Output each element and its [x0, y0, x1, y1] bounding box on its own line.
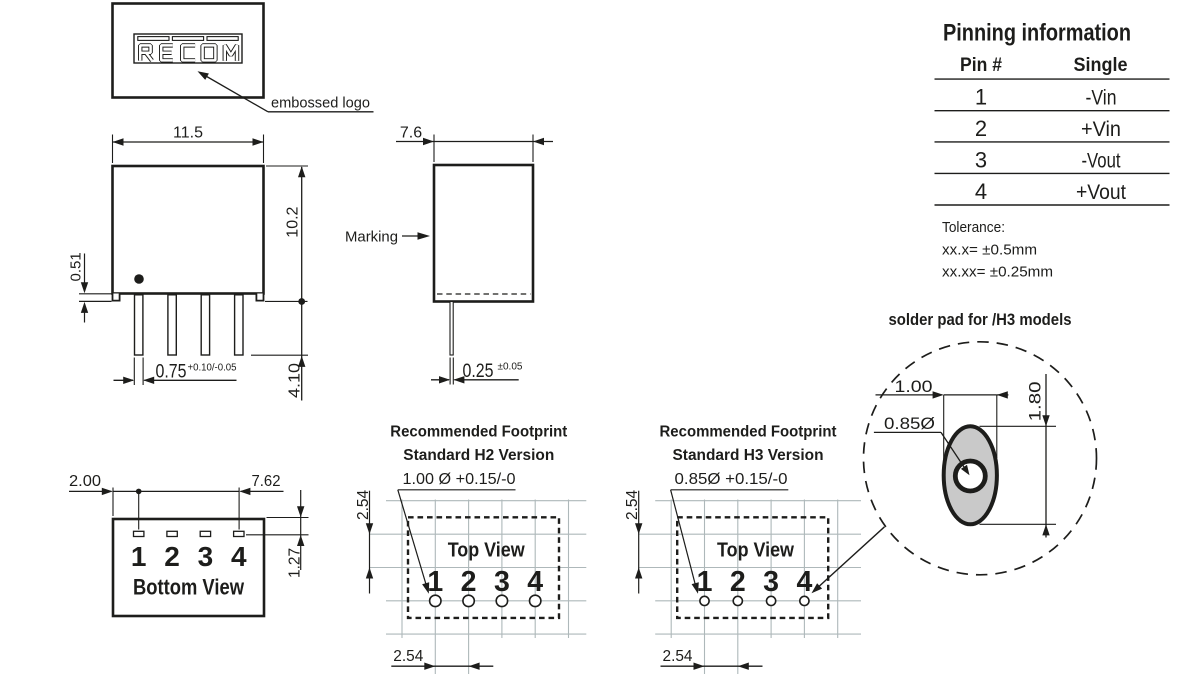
svg-text:1.00 Ø +0.15/-0: 1.00 Ø +0.15/-0 [403, 471, 516, 488]
svg-text:0.85Ø +0.15/-0: 0.85Ø +0.15/-0 [675, 471, 788, 488]
svg-text:3: 3 [763, 566, 779, 598]
svg-text:2.00: 2.00 [69, 473, 101, 490]
svg-text:±0.05: ±0.05 [498, 362, 523, 373]
svg-text:+Vout: +Vout [1076, 181, 1126, 204]
svg-text:4.10: 4.10 [286, 363, 303, 398]
svg-text:3: 3 [975, 148, 987, 173]
svg-text:4: 4 [527, 566, 543, 598]
svg-text:-Vout: -Vout [1082, 150, 1121, 173]
svg-text:0.75: 0.75 [156, 362, 187, 383]
svg-text:Bottom View: Bottom View [133, 575, 245, 600]
svg-text:10.2: 10.2 [285, 206, 302, 237]
svg-text:Pinning information: Pinning information [943, 20, 1131, 47]
svg-text:2: 2 [461, 566, 477, 598]
svg-text:1: 1 [975, 85, 987, 110]
svg-text:Recommended Footprint: Recommended Footprint [390, 424, 568, 441]
svg-text:0.51: 0.51 [68, 252, 85, 281]
svg-text:11.5: 11.5 [173, 124, 203, 141]
svg-text:1: 1 [427, 566, 443, 598]
svg-text:0.85Ø: 0.85Ø [884, 414, 935, 433]
svg-text:3: 3 [494, 566, 510, 598]
svg-text:1: 1 [697, 566, 713, 598]
svg-text:4: 4 [975, 179, 987, 204]
svg-text:7.6: 7.6 [400, 124, 422, 141]
svg-text:Marking: Marking [345, 229, 398, 246]
svg-text:Single: Single [1074, 55, 1128, 76]
svg-text:2: 2 [975, 116, 987, 141]
svg-text:+0.10/-0.05: +0.10/-0.05 [188, 363, 237, 374]
svg-text:1.00: 1.00 [895, 377, 933, 396]
svg-text:0.25: 0.25 [463, 361, 494, 382]
svg-text:Top View: Top View [448, 540, 525, 562]
svg-text:7.62: 7.62 [252, 473, 281, 490]
svg-text:1.27: 1.27 [286, 548, 303, 578]
svg-text:Standard H2 Version: Standard H2 Version [403, 447, 554, 464]
svg-text:-Vin: -Vin [1086, 87, 1117, 110]
svg-text:2: 2 [164, 541, 180, 572]
svg-text:1: 1 [131, 541, 147, 572]
svg-text:1.80: 1.80 [1026, 381, 1045, 421]
svg-text:4: 4 [796, 566, 812, 598]
svg-text:xx.x= ±0.5mm: xx.x= ±0.5mm [942, 242, 1037, 259]
svg-text:embossed logo: embossed logo [271, 95, 370, 112]
svg-text:Tolerance:: Tolerance: [942, 219, 1005, 236]
svg-text:Top View: Top View [717, 540, 794, 562]
svg-text:2.54: 2.54 [393, 648, 423, 665]
svg-text:2: 2 [730, 566, 746, 598]
svg-text:solder pad for /H3 models: solder pad for /H3 models [889, 311, 1072, 329]
svg-text:4: 4 [231, 541, 247, 572]
svg-text:Pin #: Pin # [960, 55, 1002, 76]
svg-text:+Vin: +Vin [1081, 118, 1121, 141]
svg-text:xx.xx= ±0.25mm: xx.xx= ±0.25mm [942, 264, 1053, 281]
svg-text:3: 3 [198, 541, 214, 572]
svg-text:2.54: 2.54 [663, 648, 693, 665]
svg-text:Recommended Footprint: Recommended Footprint [660, 424, 838, 441]
svg-text:Standard H3 Version: Standard H3 Version [673, 447, 824, 464]
